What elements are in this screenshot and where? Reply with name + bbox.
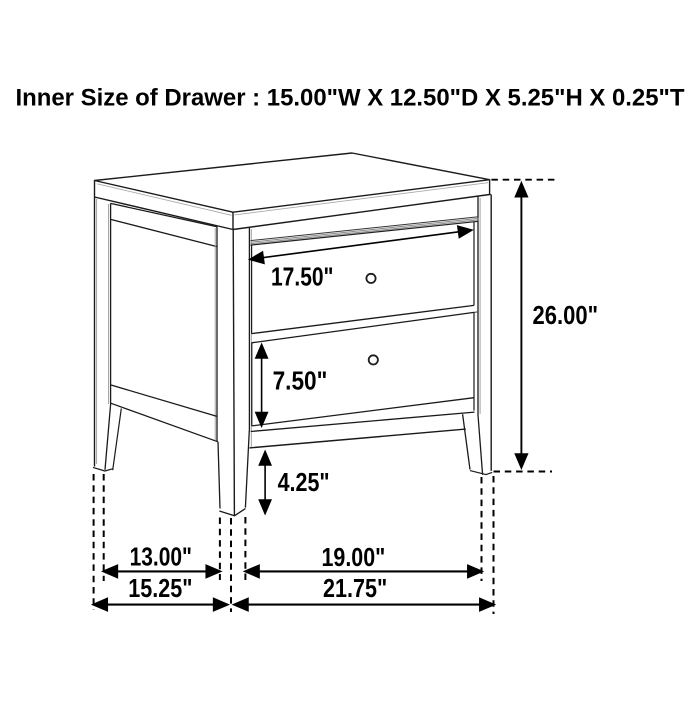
svg-text:4.25": 4.25"	[278, 469, 330, 497]
svg-text:26.00": 26.00"	[533, 302, 599, 330]
svg-text:7.50": 7.50"	[273, 368, 328, 396]
svg-text:19.00": 19.00"	[322, 544, 386, 572]
svg-text:15.25": 15.25"	[128, 575, 192, 603]
svg-text:17.50": 17.50"	[271, 263, 334, 291]
svg-text:21.75": 21.75"	[323, 575, 387, 603]
svg-text:Inner Size of Drawer : 15.00"W: Inner Size of Drawer : 15.00"W X 12.50"D…	[16, 85, 685, 112]
svg-text:13.00": 13.00"	[130, 543, 192, 571]
